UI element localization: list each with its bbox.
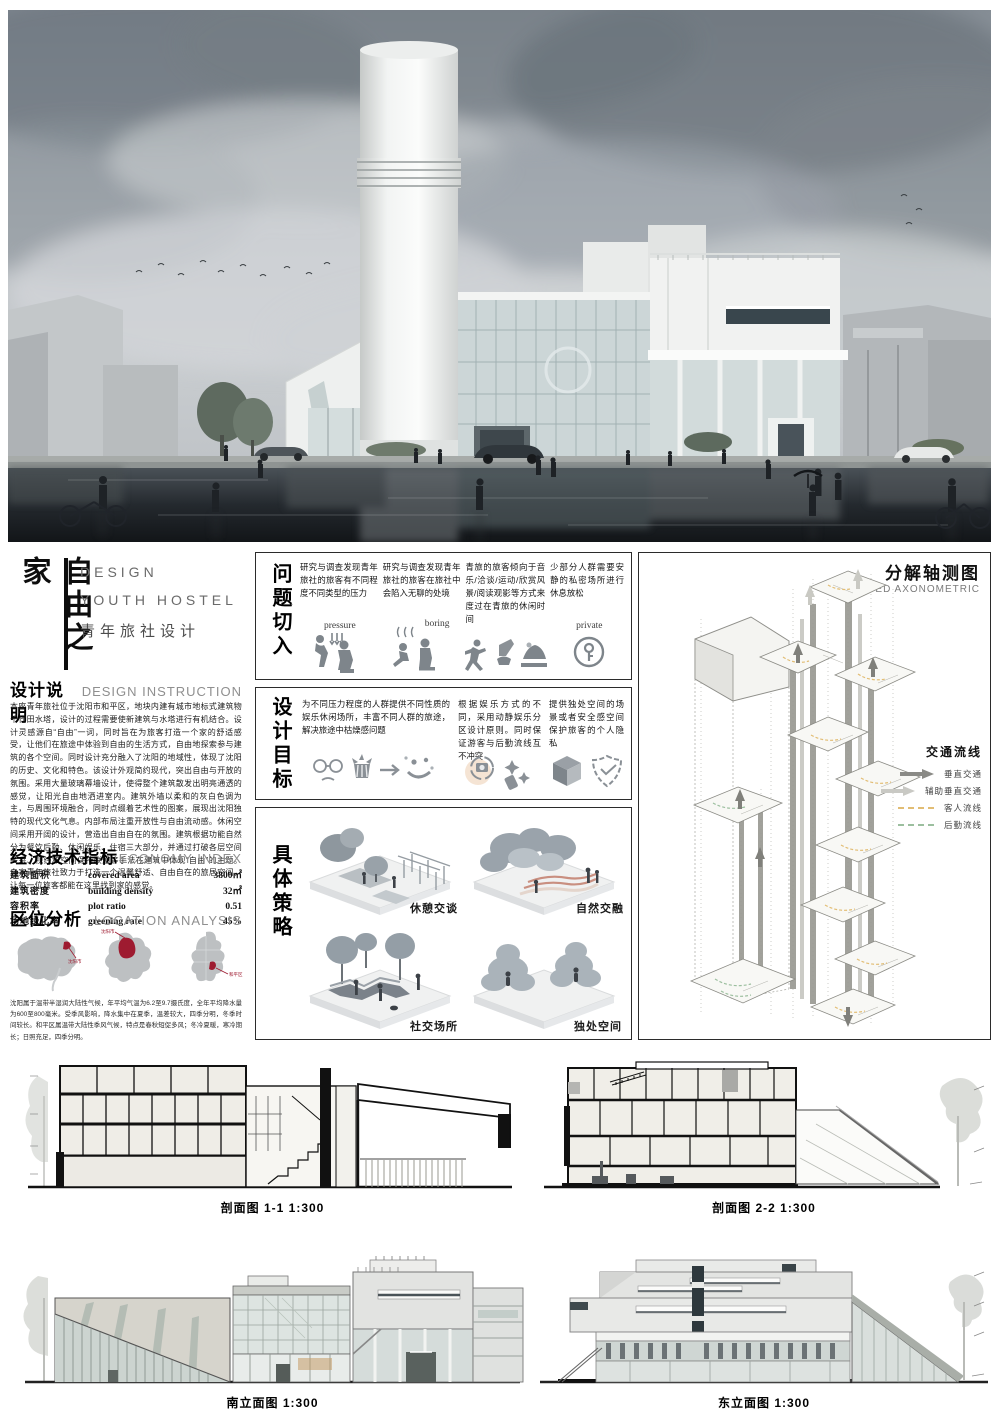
strategy-heading: 具体策略 — [266, 844, 295, 1004]
map-label: 沈阳市 — [68, 958, 82, 965]
legend-label: 辅助垂直交通 — [925, 785, 982, 797]
south-elevation-drawing — [20, 1246, 525, 1389]
goal-heading: 设计目标 — [266, 696, 295, 794]
section-1-1-drawing — [20, 1056, 525, 1194]
china-map: 沈阳市 — [8, 928, 84, 992]
aux-vertical-traffic-arrow — [879, 785, 917, 797]
popcorn-icon — [352, 754, 372, 778]
legend-label: 垂直交通 — [944, 768, 982, 780]
problem-item: 青旅的旅客倾向于音乐/洽谈/运动/欣赏风景/阅读观影等方式来度过在青旅的休闲时间 — [465, 561, 545, 673]
axonometric-section: 分解轴测图 EXPLODED AXONOMETRIC — [638, 552, 991, 1040]
subtitle-line-2: YOUTH HOSTEL — [80, 592, 237, 608]
map-label: 沈阳市 — [101, 928, 115, 935]
legend-item: 客人流线 — [842, 802, 982, 814]
title-divider — [64, 558, 68, 670]
problem-heading: 问题切入 — [266, 563, 295, 671]
location-analysis-heading: 区位分析 LOCATION ANALYSIS — [10, 905, 242, 930]
guest-flow-dash — [898, 805, 936, 811]
strategy-label: 休憩交谈 — [410, 900, 458, 916]
legend-item: 后勤流线 — [842, 819, 982, 831]
strategy-label: 独处空间 — [574, 1018, 622, 1034]
shield-icon — [593, 756, 621, 786]
economy-row: 建筑面积 covered area 3800㎡ — [10, 867, 242, 881]
pressure-label: pressure — [324, 621, 356, 631]
liaoning-map: 沈阳市 — [89, 928, 165, 992]
strategy-item: 休憩交谈 — [300, 812, 464, 924]
location-maps: 沈阳市 沈阳市 和平区 — [8, 928, 246, 992]
legend-item: 辅助垂直交通 — [842, 785, 982, 797]
legend-label: 客人流线 — [944, 802, 982, 814]
presentation-board: 自由之家 DESIGN YOUTH HOSTEL 青年旅社设计 设计说明 DES… — [0, 0, 999, 1415]
private-key-icon — [572, 635, 606, 669]
goal-item-text: 提供独处空间的场景或者安全感空间保护旅客的个人隐私 — [549, 698, 624, 750]
design-instruction-heading-en: DESIGN INSTRUCTION — [82, 684, 242, 699]
subtitle-line-3: 青年旅社设计 — [80, 620, 237, 641]
traffic-legend: 交通流线 垂直交通 辅助垂直交通 客人流线 后勤流线 — [842, 743, 982, 836]
location-analysis-heading-en: LOCATION ANALYSIS — [94, 913, 242, 928]
cube-icon — [553, 756, 581, 786]
east-elevation-label: 东立面图 1:300 — [540, 1394, 988, 1411]
legend-label: 后勤流线 — [944, 819, 982, 831]
location-analysis-heading-zh: 区位分析 — [10, 905, 82, 930]
hero-rendering — [8, 10, 991, 542]
sparkles-icon — [504, 760, 530, 790]
legend-item: 垂直交通 — [842, 768, 982, 780]
social-place-illustration — [300, 924, 460, 1032]
goal-icons-2 — [464, 754, 536, 790]
goal-item-text: 为不同压力程度的人群提供不同性质的娱乐休闲场所，丰富不同人群的旅途，解决旅途中枯… — [302, 698, 450, 737]
location-analysis-caption: 沈阳属于温带半湿润大陆性气候，年平均气温为6.2至9.7摄氏度，全年平均降水量为… — [10, 998, 242, 1043]
private-label: private — [576, 621, 602, 631]
economy-index-heading-zh: 经济技术指标 — [10, 843, 118, 868]
economy-row-en: building density — [88, 887, 223, 897]
problem-item-text: 研究与调查发现青年旅社的旅客有不同程度不同类型的压力 — [300, 561, 378, 600]
boring-icon — [389, 625, 447, 671]
economy-row-zh: 建筑密度 — [10, 884, 88, 897]
section-2-2-drawing — [540, 1056, 988, 1194]
strategy-item: 自然交融 — [464, 812, 628, 924]
strategy-item: 社交场所 — [300, 924, 464, 1036]
economy-row-value: 32㎡ — [223, 883, 242, 897]
problem-item-text: 研究与调查发现青年旅社的旅客在旅社中会陷入无聊的处境 — [383, 561, 461, 600]
economy-row: 建筑密度 building density 32㎡ — [10, 883, 242, 897]
economy-row-value: 3800㎡ — [213, 867, 242, 881]
arrow-icon — [380, 765, 398, 775]
problem-item-text: 青旅的旅客倾向于音乐/洽谈/运动/欣赏风景/阅读观影等方式来度过在青旅的休闲时间 — [465, 561, 545, 626]
goal-icons-1 — [310, 750, 440, 790]
title-block: 自由之家 DESIGN YOUTH HOSTEL 青年旅社设计 — [12, 556, 248, 680]
solitary-space-illustration — [464, 924, 624, 1032]
south-elevation-label: 南立面图 1:300 — [20, 1394, 525, 1411]
vertical-traffic-arrow — [898, 768, 936, 780]
problem-item: 研究与调查发现青年旅社的旅客有不同程度不同类型的压力 pressure — [300, 561, 378, 673]
strategy-section: 具体策略 — [255, 807, 632, 1040]
problem-item: 少部分人群需要安静的私密场所进行休息放松 private — [550, 561, 624, 673]
pressure-icon — [310, 631, 362, 673]
economy-index-heading: 经济技术指标 ECONOMY INDEX — [10, 843, 242, 868]
problem-item-text: 少部分人群需要安静的私密场所进行休息放松 — [550, 561, 624, 600]
east-elevation-drawing — [540, 1246, 988, 1389]
sad-face-icon — [314, 760, 342, 780]
economy-row-zh: 建筑面积 — [10, 868, 88, 881]
map-label: 和平区 — [229, 971, 243, 978]
goal-icons-3 — [551, 752, 627, 790]
hero-rendering-image — [8, 10, 991, 542]
goal-item: 根据娱乐方式的不同，采用动静娱乐分区设计原则。同时保证游客与后勤流线互不冲突 — [458, 698, 541, 794]
problem-item: 研究与调查发现青年旅社的旅客在旅社中会陷入无聊的处境 boring — [383, 561, 461, 673]
goal-item: 提供独处空间的场景或者安全感空间保护旅客的个人隐私 — [549, 698, 624, 794]
traffic-legend-title: 交通流线 — [842, 743, 982, 760]
subtitle-line-1: DESIGN — [80, 564, 237, 580]
strategy-label: 社交场所 — [410, 1018, 458, 1034]
economy-row-en: covered area — [88, 871, 213, 881]
strategy-item: 独处空间 — [464, 924, 628, 1036]
goal-item: 为不同压力程度的人群提供不同性质的娱乐休闲场所，丰富不同人群的旅途，解决旅途中枯… — [302, 698, 450, 794]
goal-section: 设计目标 为不同压力程度的人群提供不同性质的娱乐休闲场所，丰富不同人群的旅途，解… — [255, 687, 632, 800]
leisure-icons — [465, 637, 547, 671]
service-flow-dash — [898, 822, 936, 828]
section-2-2-label: 剖面图 2-2 1:300 — [540, 1199, 988, 1216]
economy-index-heading-en: ECONOMY INDEX — [119, 851, 242, 866]
strategy-label: 自然交融 — [576, 900, 624, 916]
happy-face-icon — [404, 756, 433, 777]
section-1-1-label: 剖面图 1-1 1:300 — [20, 1199, 525, 1216]
shenyang-map: 和平区 — [170, 928, 246, 992]
problem-section: 问题切入 研究与调查发现青年旅社的旅客有不同程度不同类型的压力 pressure — [255, 552, 632, 680]
